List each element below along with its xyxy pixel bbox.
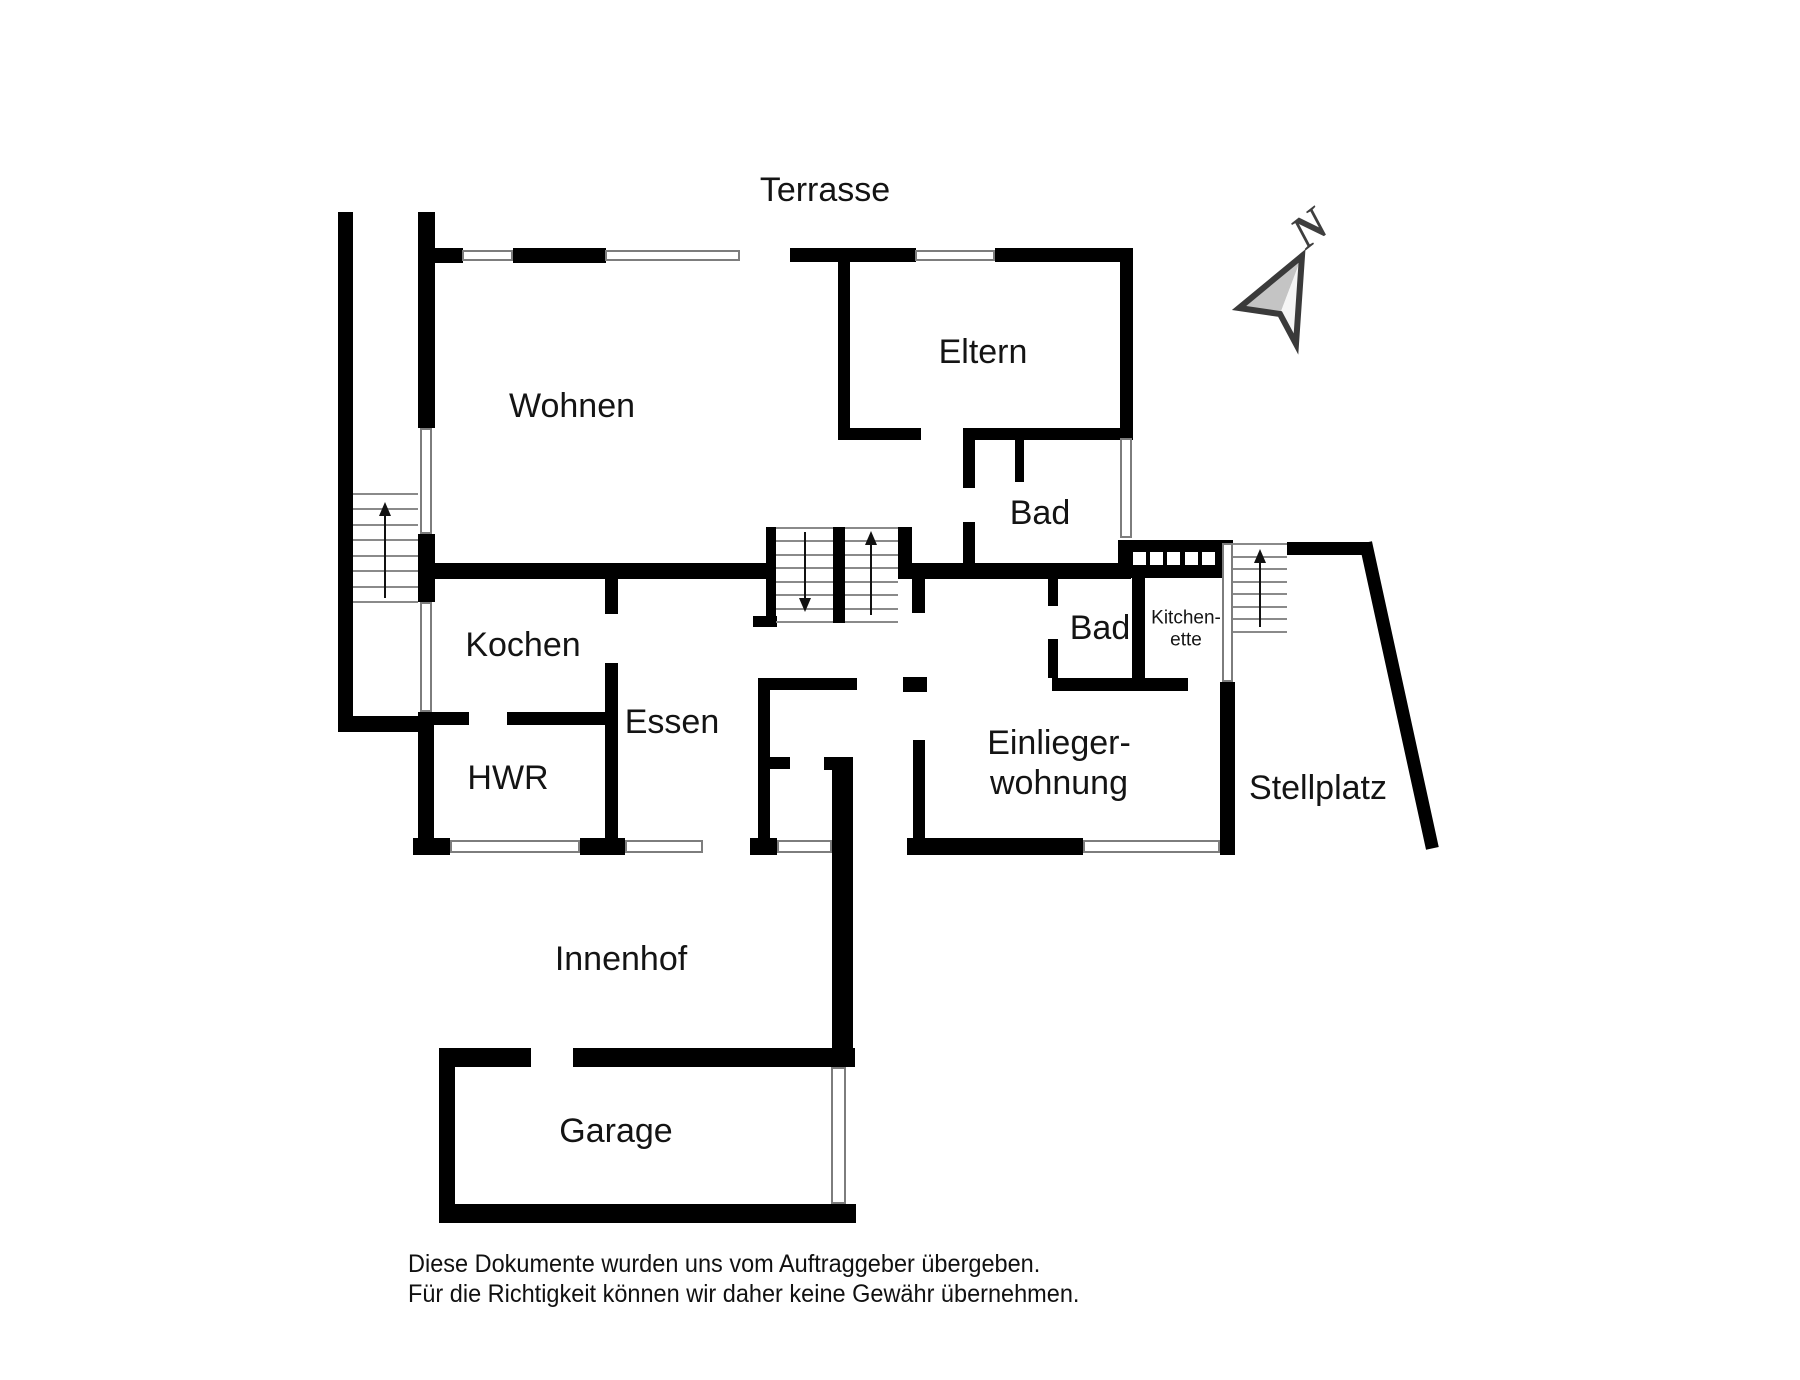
wall-segment (750, 838, 777, 855)
wall-segment (898, 527, 912, 577)
stair-tread (353, 493, 418, 495)
treppe-haus-ab (776, 527, 833, 623)
room-label-bad-haupthaus: Bad (1010, 493, 1071, 533)
window (915, 250, 995, 261)
wall-segment (413, 838, 450, 855)
wall-segment (832, 757, 853, 1067)
north-arrow-facet-dark (1239, 256, 1302, 314)
north-arrow-icon (1239, 256, 1302, 344)
stair-tread (1233, 606, 1287, 608)
room-label-hwr: HWR (467, 758, 548, 798)
stair-tread (845, 594, 898, 596)
stair-tread (776, 594, 833, 596)
stair-tread (845, 540, 898, 542)
window (777, 840, 832, 853)
wall-segment (1220, 682, 1235, 855)
stair-tread (1233, 593, 1287, 595)
wall-segment (432, 248, 463, 263)
treppe-aussen-ost (1233, 543, 1287, 633)
wall-segment (995, 248, 1133, 262)
wall-segment (605, 577, 618, 614)
treppe-aussen-west (353, 493, 418, 603)
stair-tread (845, 621, 898, 623)
stair-tread (1233, 618, 1287, 620)
wall-segment (1132, 575, 1145, 691)
room-label-stellplatz: Stellplatz (1249, 768, 1387, 808)
wall-segment (605, 712, 618, 853)
wall-segment (1145, 678, 1188, 691)
stair-tread (845, 581, 898, 583)
stair-tread (776, 527, 833, 529)
kitchenette-counter-square (1133, 552, 1146, 565)
wall-segment (433, 712, 469, 725)
room-label-kitchenette: Kitchen- ette (1151, 608, 1221, 653)
wall-segment (1048, 639, 1058, 678)
wall-segment (903, 677, 927, 692)
stair-tread (353, 586, 418, 588)
room-label-einliegerwohnung: Einlieger- wohnung (987, 723, 1131, 803)
window (462, 250, 513, 261)
stair-tread (776, 621, 833, 623)
wall-segment (1120, 248, 1133, 438)
wall-segment (418, 712, 434, 853)
window (450, 840, 580, 853)
kitchenette-counter-square (1150, 552, 1163, 565)
disclaimer-line-1: Diese Dokumente wurden uns vom Auftragge… (408, 1250, 1079, 1280)
wall-segment (963, 440, 975, 488)
stair-tread (776, 581, 833, 583)
stair-tread (776, 608, 833, 610)
north-letter: N (1280, 196, 1340, 258)
wall-segment (838, 248, 850, 440)
window (420, 428, 432, 534)
stair-tread (776, 554, 833, 556)
wall-segment (433, 563, 766, 579)
window (1083, 840, 1220, 853)
stair-tread (353, 524, 418, 526)
stair-tread (353, 508, 418, 510)
room-label-kochen: Kochen (465, 625, 580, 665)
stair-tread (353, 601, 418, 603)
floorplan-canvas: Diese Dokumente wurden uns vom Auftragge… (0, 0, 1800, 1380)
stair-tread (845, 554, 898, 556)
wall-segment (1015, 440, 1024, 482)
disclaimer-line-2: Für die Richtigkeit können wir daher kei… (408, 1280, 1079, 1310)
wall-segment (580, 838, 625, 855)
plan-overlay: N (0, 0, 1800, 1380)
stair-tread (353, 555, 418, 557)
wall-segment (1048, 575, 1058, 606)
room-label-garage: Garage (559, 1111, 672, 1151)
window (605, 250, 740, 261)
wall-segment (507, 712, 606, 725)
wall-segment (912, 563, 925, 613)
stair-tread (1233, 568, 1287, 570)
wall-segment (765, 757, 790, 769)
window (831, 1067, 846, 1204)
stair-tread (1233, 631, 1287, 633)
wall-segment (758, 678, 857, 690)
stair-tread (845, 608, 898, 610)
room-label-wohnen: Wohnen (509, 386, 635, 426)
window (1222, 543, 1233, 682)
stair-tread (776, 540, 833, 542)
north-arrow-facet-light (1280, 256, 1302, 344)
stair-tread (845, 527, 898, 529)
stair-tread (845, 567, 898, 569)
wall-segment (338, 212, 353, 732)
window (625, 840, 703, 853)
wall-segment (418, 212, 435, 428)
wall-segment (963, 428, 1133, 440)
stair-tread (1233, 556, 1287, 558)
treppe-haus-auf (845, 527, 898, 623)
room-label-bad-einlieger: Bad (1070, 608, 1131, 648)
window (1120, 438, 1132, 538)
wall-segment (913, 740, 925, 843)
wall-segment (963, 522, 975, 566)
wall-segment (907, 838, 1083, 855)
room-label-innenhof: Innenhof (555, 939, 687, 979)
wall-segment (833, 527, 845, 623)
wall-segment (766, 527, 776, 623)
wall-segment (838, 428, 921, 440)
room-label-eltern: Eltern (939, 332, 1028, 372)
window (420, 602, 432, 712)
wall-segment (513, 248, 606, 263)
wall-segment (605, 663, 618, 725)
wall-segment (898, 563, 1131, 579)
stair-tread (776, 567, 833, 569)
wall-segment (790, 248, 916, 262)
kitchenette-counter-square (1167, 552, 1180, 565)
wall-segment (439, 1204, 856, 1223)
room-label-essen: Essen (625, 702, 720, 742)
stair-tread (353, 570, 418, 572)
wall-segment (753, 616, 777, 627)
stair-tread (353, 539, 418, 541)
room-label-terrasse: Terrasse (760, 170, 890, 210)
kitchenette-counter-square (1185, 552, 1198, 565)
disclaimer-text: Diese Dokumente wurden uns vom Auftragge… (408, 1250, 1079, 1309)
wall-segment (573, 1048, 855, 1067)
wall-segment (439, 1048, 455, 1223)
stair-tread (1233, 543, 1287, 545)
stair-tread (1233, 581, 1287, 583)
kitchenette-counter-square (1202, 552, 1215, 565)
wall-segment (1287, 542, 1371, 555)
